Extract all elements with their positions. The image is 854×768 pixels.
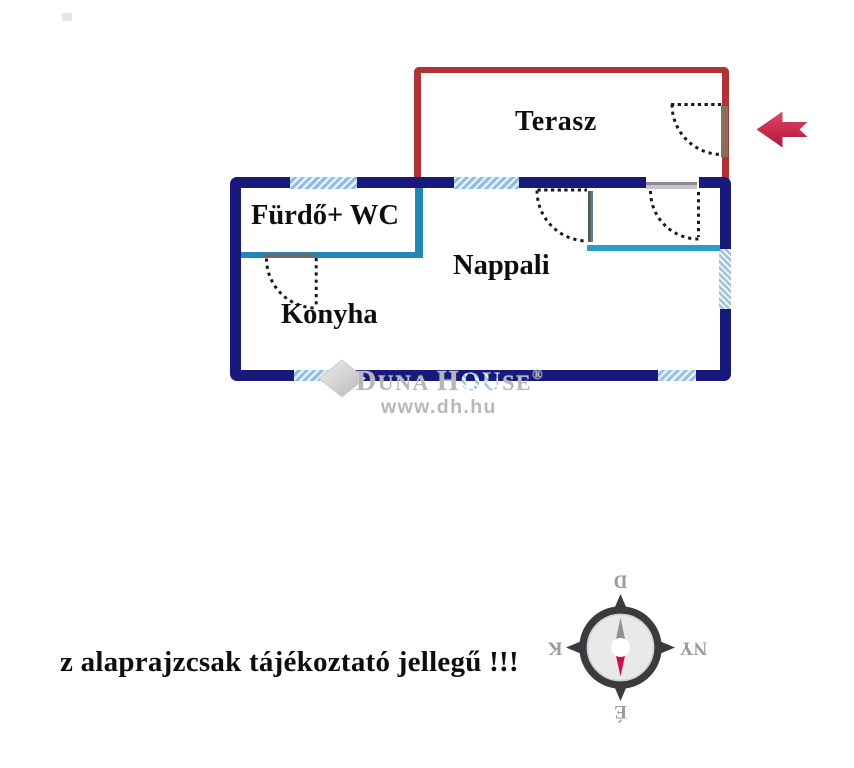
svg-text:D: D [614, 571, 628, 592]
svg-text:NY: NY [680, 638, 708, 659]
svg-text:K: K [547, 638, 562, 659]
svg-text:É: É [614, 701, 627, 723]
